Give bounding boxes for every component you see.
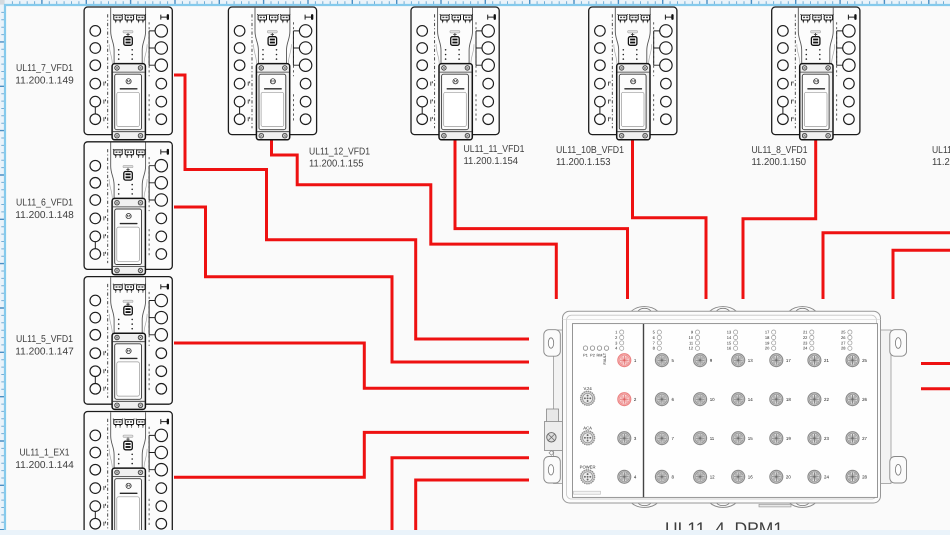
svg-text:ACA: ACA xyxy=(583,426,592,431)
svg-text:UL11_5_VFD1: UL11_5_VFD1 xyxy=(16,334,73,345)
svg-text:UL11_12_VFD1: UL11_12_VFD1 xyxy=(309,146,370,157)
svg-text:UL11_7_VFD1: UL11_7_VFD1 xyxy=(16,63,73,74)
svg-text:15: 15 xyxy=(727,340,732,345)
svg-text:20: 20 xyxy=(765,346,770,351)
svg-text:25: 25 xyxy=(862,358,867,363)
svg-text:11.200.1.154: 11.200.1.154 xyxy=(464,156,519,167)
svg-text:11.200.1.149: 11.200.1.149 xyxy=(15,75,74,86)
svg-text:14: 14 xyxy=(727,335,732,340)
svg-text:18: 18 xyxy=(765,335,770,340)
svg-text:16: 16 xyxy=(727,346,732,351)
svg-text:10: 10 xyxy=(689,335,694,340)
svg-text:11.200.1.155: 11.200.1.155 xyxy=(309,158,364,169)
svg-text:UL11_6_VFD1: UL11_6_VFD1 xyxy=(16,198,73,209)
svg-text:13: 13 xyxy=(748,358,753,363)
svg-text:11.200.1.148: 11.200.1.148 xyxy=(15,210,74,221)
svg-text:13: 13 xyxy=(727,330,732,335)
svg-text:15: 15 xyxy=(748,436,753,441)
svg-text:23: 23 xyxy=(824,436,829,441)
svg-text:22: 22 xyxy=(824,397,829,402)
svg-text:UL11_11_VFD1: UL11_11_VFD1 xyxy=(464,144,525,155)
svg-text:11.200.1.153: 11.200.1.153 xyxy=(556,157,611,168)
svg-text:24: 24 xyxy=(803,346,808,351)
svg-text:11.200.1.147: 11.200.1.147 xyxy=(15,347,74,358)
svg-text:17: 17 xyxy=(786,358,791,363)
svg-text:UL11_9_VFD1: UL11_9_VFD1 xyxy=(932,145,950,156)
svg-text:P1: P1 xyxy=(583,353,588,357)
svg-text:V.24: V.24 xyxy=(583,386,592,391)
svg-text:26: 26 xyxy=(841,335,846,340)
svg-text:POWER: POWER xyxy=(580,465,596,470)
svg-text:20: 20 xyxy=(786,474,791,479)
svg-text:27: 27 xyxy=(862,436,867,441)
svg-text:12: 12 xyxy=(689,346,694,351)
svg-text:14: 14 xyxy=(748,397,753,402)
svg-text:UL11_8_VFD1: UL11_8_VFD1 xyxy=(752,145,808,156)
svg-text:19: 19 xyxy=(765,340,770,345)
svg-text:11: 11 xyxy=(710,436,715,441)
svg-text:26: 26 xyxy=(862,397,867,402)
svg-text:23: 23 xyxy=(803,340,808,345)
svg-text:21: 21 xyxy=(803,330,808,335)
svg-text:11.200.1.144: 11.200.1.144 xyxy=(15,460,74,471)
svg-text:11.200.1.151: 11.200.1.151 xyxy=(932,157,950,168)
svg-text:21: 21 xyxy=(824,358,829,363)
svg-text:UL11_4_DPM1: UL11_4_DPM1 xyxy=(665,518,783,530)
svg-text:FAULT: FAULT xyxy=(603,352,607,364)
svg-text:11.200.1.150: 11.200.1.150 xyxy=(752,157,807,168)
svg-text:19: 19 xyxy=(786,436,791,441)
svg-text:12: 12 xyxy=(710,474,715,479)
svg-text:22: 22 xyxy=(803,335,808,340)
svg-text:24: 24 xyxy=(824,474,829,479)
svg-text:25: 25 xyxy=(841,330,846,335)
svg-text:16: 16 xyxy=(748,474,753,479)
svg-text:UL11_10B_VFD1: UL11_10B_VFD1 xyxy=(556,145,624,156)
svg-text:28: 28 xyxy=(841,346,846,351)
svg-text:P2: P2 xyxy=(590,353,595,357)
svg-text:UL11_1_EX1: UL11_1_EX1 xyxy=(20,447,70,458)
svg-text:18: 18 xyxy=(786,397,791,402)
svg-text:10: 10 xyxy=(710,397,715,402)
svg-text:17: 17 xyxy=(765,330,770,335)
svg-text:28: 28 xyxy=(862,474,867,479)
svg-text:27: 27 xyxy=(841,340,846,345)
svg-text:RM: RM xyxy=(597,353,603,357)
